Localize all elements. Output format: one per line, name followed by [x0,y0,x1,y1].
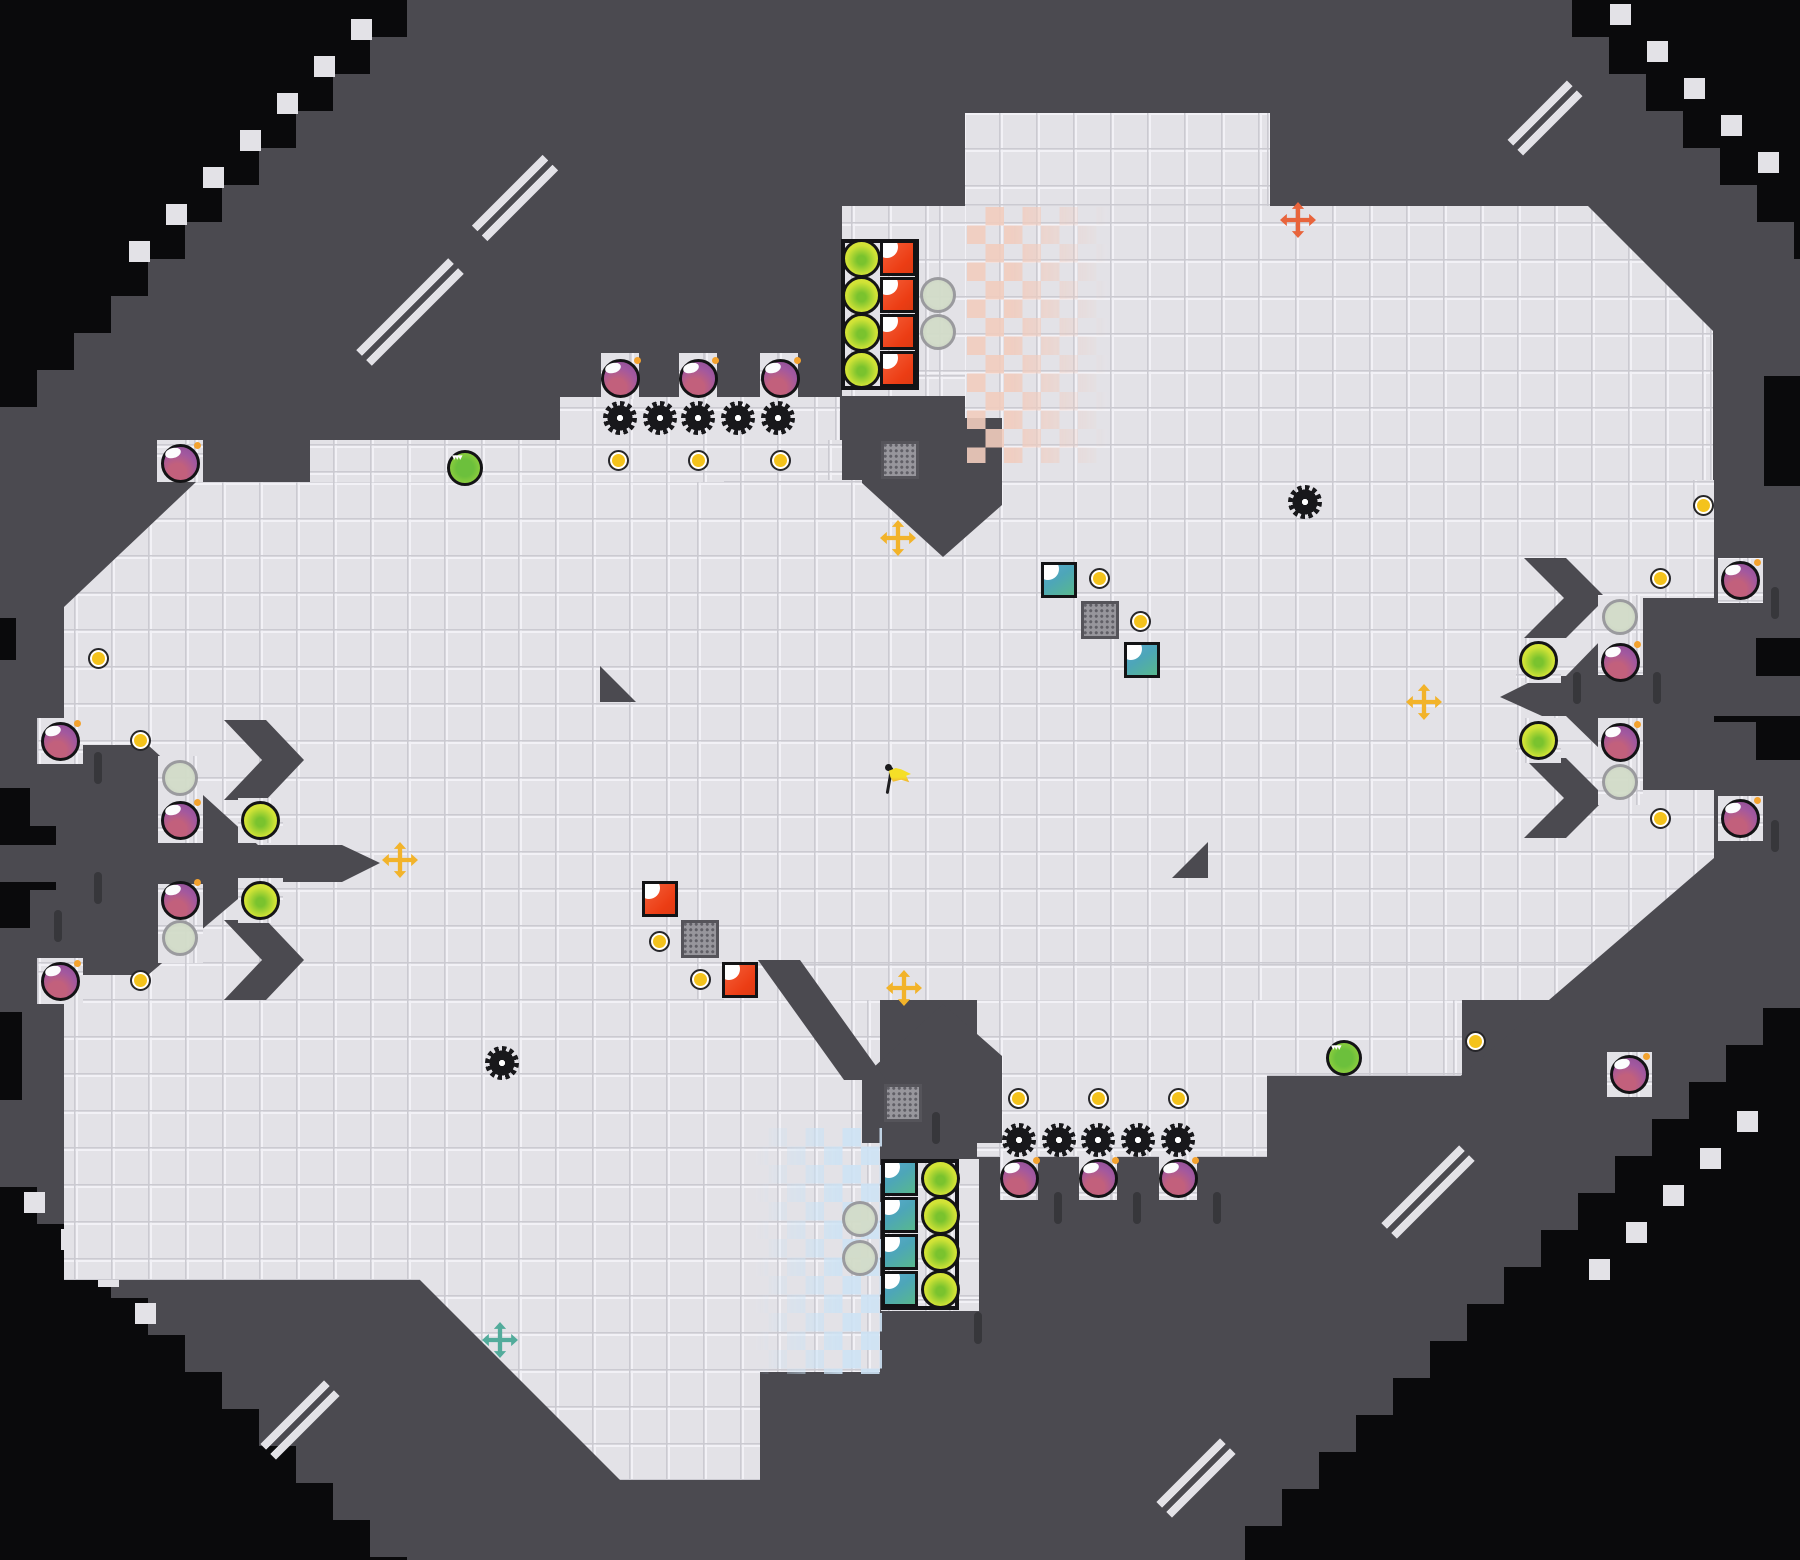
wall-slit [974,1312,982,1344]
void-notch [1764,376,1800,486]
wall-slit [54,910,62,942]
flag-cloth [889,768,911,783]
bomb [1159,1159,1198,1198]
coin-pickup [770,450,791,471]
wall-slit [1771,820,1779,852]
stair-step [1684,78,1705,99]
spawn-tile-teal [882,1197,918,1233]
bomb [761,359,800,398]
coin-pickup [1130,611,1151,632]
wall-slit [94,752,102,784]
stair-step [1721,115,1742,136]
stair-step [24,1192,45,1213]
striped-powerup-orb [1326,1040,1362,1076]
respawn-ghost-circle [1602,599,1638,635]
powerup-orb [921,1159,960,1198]
spawn-tile-red [642,881,678,917]
spawn-tile-red [722,962,758,998]
powerup-orb [921,1196,960,1235]
wall-slit [94,872,102,904]
stair-step [1647,41,1668,62]
spawn-tile-teal [1041,562,1077,598]
spawn-tile-red [880,277,916,313]
checker-zone [967,207,1113,463]
vent-grate-block [1081,601,1119,639]
stair-step [203,167,224,188]
wall-slit [1133,1192,1141,1224]
powerup-orb [241,801,280,840]
coin-pickup [688,450,709,471]
respawn-ghost-circle [920,277,956,313]
stair-step [1589,1259,1610,1280]
coin-pickup [1008,1088,1029,1109]
bomb [679,359,718,398]
wall-slit [1054,1192,1062,1224]
bomb [601,359,640,398]
stair-step [277,93,298,114]
coin-pickup [130,730,151,751]
respawn-ghost-circle [162,920,198,956]
page-body: { "palette": { "void": "#0a0a0c", "wall"… [0,0,1800,1560]
stair-step [351,19,372,40]
powerup-orb [842,276,881,315]
spawn-tile-teal [1124,642,1160,678]
stair-step [1758,152,1779,173]
powerup-orb [1519,721,1558,760]
powerup-orb [921,1270,960,1309]
bomb [1721,799,1760,838]
stair-step [1700,1148,1721,1169]
flag-marker [877,764,913,800]
gear-saw-hazard [1042,1123,1076,1157]
gear-saw-hazard [1288,485,1322,519]
powerup-orb [842,350,881,389]
wall-slit [932,1112,940,1144]
powerup-orb [1519,641,1558,680]
coin-pickup [1650,568,1671,589]
gear-saw-hazard [1161,1123,1195,1157]
coin-pickup [1168,1088,1189,1109]
respawn-ghost-circle [1602,764,1638,800]
coin-pickup [1693,495,1714,516]
bomb [1079,1159,1118,1198]
bomb [41,962,80,1001]
stair-step [314,56,335,77]
stair-step [240,130,261,151]
bomb [1000,1159,1039,1198]
floor-region [1267,1000,1462,1076]
coin-pickup [88,648,109,669]
coin-pickup [1465,1031,1486,1052]
stair-step [129,241,150,262]
stair-step [1737,1111,1758,1132]
game-map-canvas[interactable] [0,0,1800,1560]
wall-slit [1213,1192,1221,1224]
respawn-ghost-circle [920,314,956,350]
coin-pickup [649,931,670,952]
powerup-orb [842,313,881,352]
coin-pickup [1088,1088,1109,1109]
gear-saw-hazard [721,401,755,435]
spawn-tile-teal [882,1160,918,1196]
void-notch [0,1012,22,1100]
respawn-ghost-circle [842,1240,878,1276]
spawn-tile-red [880,314,916,350]
gear-saw-hazard [1002,1123,1036,1157]
respawn-ghost-circle [162,760,198,796]
gear-saw-hazard [681,401,715,435]
spawn-tile-red [880,351,916,387]
bomb [161,444,200,483]
wall-block [760,1372,880,1480]
striped-powerup-orb [447,450,483,486]
floor-region [965,113,1270,206]
bomb [1601,643,1640,682]
bomb [1601,723,1640,762]
spawn-tile-teal [882,1234,918,1270]
respawn-ghost-circle [842,1201,878,1237]
bomb [161,881,200,920]
wall-slit [1771,587,1779,619]
wall-slit [1573,672,1581,704]
gear-saw-hazard [761,401,795,435]
bomb [41,722,80,761]
spawn-tile-red [880,240,916,276]
coin-pickup [608,450,629,471]
bomb [1721,561,1760,600]
void-notch [0,618,16,660]
vent-grate-block [881,441,919,479]
stair-step [1626,1222,1647,1243]
powerup-orb [241,881,280,920]
stair-step [1663,1185,1684,1206]
bomb [1610,1055,1649,1094]
wall-slit [1653,672,1661,704]
gear-saw-hazard [603,401,637,435]
coin-pickup [1089,568,1110,589]
gear-saw-hazard [1121,1123,1155,1157]
gear-saw-hazard [1081,1123,1115,1157]
vent-grate-block [681,920,719,958]
coin-pickup [130,970,151,991]
powerup-orb [921,1233,960,1272]
vent-grate-block [884,1084,922,1122]
stair-step [166,204,187,225]
gear-saw-hazard [485,1046,519,1080]
stair-step [1610,4,1631,25]
gear-saw-hazard [643,401,677,435]
powerup-orb [842,239,881,278]
coin-pickup [1650,808,1671,829]
bomb [161,801,200,840]
coin-pickup [690,969,711,990]
stair-step [135,1303,156,1324]
spawn-tile-teal [882,1271,918,1307]
